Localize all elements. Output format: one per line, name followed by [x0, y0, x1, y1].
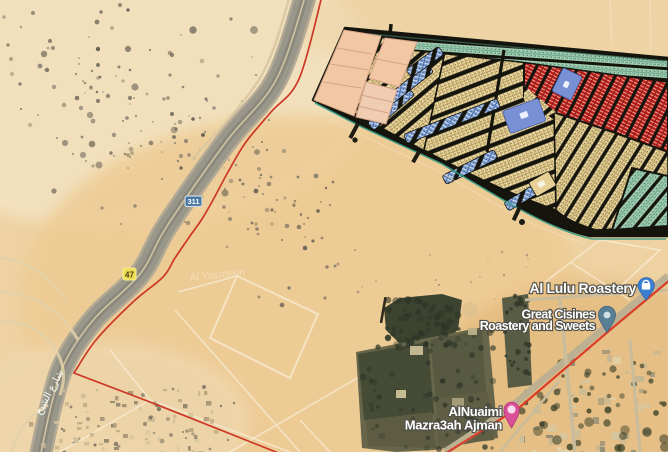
svg-text:47: 47: [125, 271, 134, 280]
svg-text:Al Lulu Roastery: Al Lulu Roastery: [530, 280, 637, 296]
svg-text:Roastery and Sweets: Roastery and Sweets: [480, 319, 596, 333]
svg-text:Mazra3ah Ajman: Mazra3ah Ajman: [405, 418, 503, 433]
svg-text:311: 311: [187, 197, 199, 206]
